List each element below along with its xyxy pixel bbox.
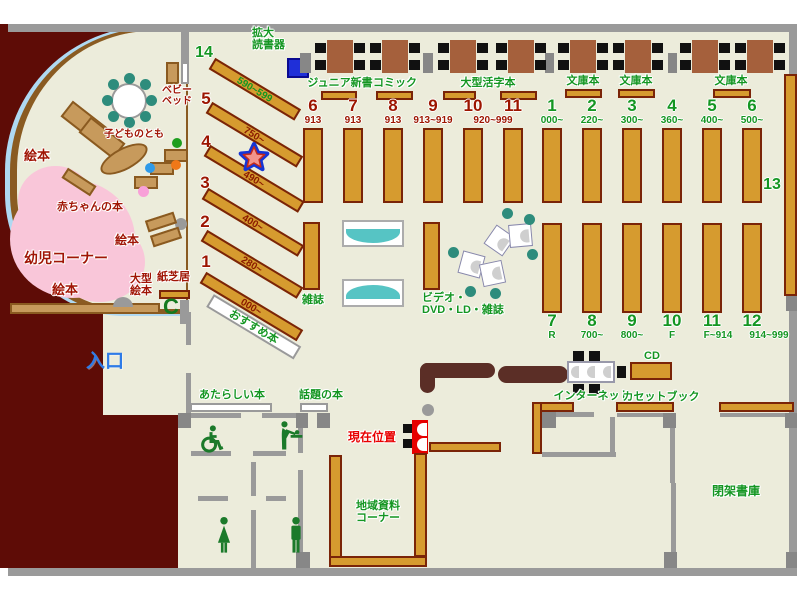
stack-shelf [423, 128, 443, 203]
internet-table [567, 361, 615, 383]
section-9-num: 9 [413, 97, 453, 115]
label-topic-books: 話題の本 [293, 389, 349, 401]
wall-stacks-left-a [670, 428, 675, 483]
wall-top [8, 24, 797, 32]
carrel-chair [524, 214, 535, 225]
fiction-5-range: 400~ [690, 115, 734, 126]
label-bunko-3: 文庫本 [710, 75, 752, 87]
diag-num-1: 1 [194, 253, 218, 271]
pillar [542, 412, 556, 428]
baby-change-icon [276, 420, 304, 452]
fiction-4-num: 4 [652, 97, 692, 115]
stack-shelf [582, 223, 602, 313]
section-11-num: 11 [493, 97, 533, 115]
color-dot-blue [145, 163, 155, 173]
south-10-num: 10 [652, 312, 692, 330]
south-8-num: 8 [572, 312, 612, 330]
label-kodomo-no-tomo: 子どものとも [104, 129, 164, 141]
label-large-print: 大型活字本 [453, 77, 523, 89]
wall-right-room [720, 413, 794, 417]
wall-corridor-right-a [186, 312, 191, 345]
magazine-rack [342, 220, 404, 247]
label-yoji-corner: 幼児コーナー [24, 252, 108, 264]
fiction-6-num: 6 [732, 97, 772, 115]
label-junior-shinsho: ジュニア新書 [305, 77, 375, 89]
stack-shelf [622, 128, 642, 203]
marker-side-shelf [429, 442, 501, 452]
library-floor-map: 絵本 子どものとも ベビー ベッド 赤ちゃんの本 絵本 幼児コーナー 絵本 大型… [0, 0, 800, 600]
magazine-shelf [303, 222, 320, 290]
south-11-range: F~914 [692, 330, 744, 341]
study-carrel [479, 260, 506, 287]
internet-chair [573, 351, 584, 361]
section-6-range: 913 [293, 115, 333, 126]
color-dot-pink [138, 186, 149, 197]
topic-books-shelf [300, 403, 328, 412]
stack-shelf [503, 128, 523, 203]
fiction-2-range: 220~ [570, 115, 614, 126]
label-zasshi: 雑誌 [294, 294, 332, 306]
wall-bottom [8, 568, 797, 576]
stack-shelf [383, 128, 403, 203]
phone-icon: C [163, 296, 179, 318]
fiction-1-range: 000~ [530, 115, 574, 126]
label-closed-stacks: 閉架書庫 [706, 485, 766, 497]
kids-chair-dot [108, 79, 119, 90]
current-location-marker [412, 420, 428, 454]
study-carrel [508, 223, 533, 248]
section-7-range: 913 [333, 115, 373, 126]
section-9-range: 913~919 [405, 115, 461, 126]
wall-mid-h [542, 452, 616, 457]
stack-shelf [702, 128, 722, 203]
baby-bed-box [166, 62, 179, 84]
pillar [786, 296, 797, 311]
reader-machine-label: 拡大 読書器 [252, 27, 302, 51]
wall-toilet-top-a [191, 413, 241, 418]
pillar [668, 53, 677, 73]
door-left-upper [181, 62, 189, 84]
pillar [663, 413, 676, 428]
kids-chair-dot [108, 111, 119, 122]
counter-bar [498, 366, 568, 383]
stack-shelf [622, 223, 642, 313]
fiction-5-num: 5 [692, 97, 732, 115]
fiction-1-num: 1 [532, 97, 572, 115]
label-comic: コミック [370, 77, 420, 89]
stack-shelf [662, 223, 682, 313]
wall-stacks-left-b [671, 483, 676, 557]
color-dot-orange [171, 160, 181, 170]
kids-chair-dot [140, 79, 151, 90]
internet-chair [589, 351, 600, 361]
section-10-num: 10 [453, 97, 493, 115]
pillar [545, 53, 554, 73]
pillar [300, 53, 311, 73]
pillar [664, 552, 677, 568]
man-icon [285, 516, 307, 554]
kids-chair-dot [146, 95, 157, 106]
local-u-bottom [329, 556, 427, 567]
color-dot-green [172, 138, 182, 148]
local-u-left [329, 455, 342, 567]
kids-bottom-wall [10, 303, 160, 314]
pillar [423, 53, 433, 73]
label-bunko-1: 文庫本 [562, 75, 604, 87]
carrel-chair [502, 208, 513, 219]
section-8-num: 8 [373, 97, 413, 115]
label-13: 13 [760, 176, 784, 194]
pillar [785, 413, 797, 428]
section-10-range: 920~999 [462, 115, 524, 126]
carrel-chair [465, 286, 476, 297]
label-baby-bed: ベビー ベッド [162, 85, 192, 107]
section-7-num: 7 [333, 97, 373, 115]
label-akachan: 赤ちゃんの本 [57, 201, 123, 213]
wall-toilet-div-b [251, 510, 256, 568]
cassette-shelf [616, 402, 674, 412]
stack-shelf [702, 223, 722, 313]
label-cd: CD [638, 350, 666, 362]
fiction-6-range: 500~ [730, 115, 774, 126]
star-marker [238, 142, 270, 174]
south-12-range: 914~999 [740, 330, 798, 341]
fiction-3-range: 300~ [610, 115, 654, 126]
new-books-shelf [190, 403, 272, 412]
stack-shelf [662, 128, 682, 203]
marker-chair [403, 439, 412, 448]
fiction-2-num: 2 [572, 97, 612, 115]
label-ehon-3: 絵本 [52, 284, 78, 296]
wall-mid-v [610, 417, 615, 457]
section-6-num: 6 [293, 97, 333, 115]
pillar [317, 413, 330, 428]
south-7-num: 7 [532, 312, 572, 330]
woman-icon [213, 516, 235, 554]
diag-num-3: 3 [193, 174, 217, 192]
label-ehon-2: 絵本 [115, 234, 139, 246]
pillar [296, 552, 310, 568]
label-current-location: 現在位置 [348, 431, 396, 443]
cd-shelf [630, 362, 672, 380]
diag-num-2: 2 [193, 213, 217, 231]
label-local-materials: 地域資料 コーナー [350, 500, 406, 524]
carrel-chair [448, 247, 459, 258]
magazine-rack [342, 279, 404, 307]
label-bunko-2: 文庫本 [615, 75, 657, 87]
video-shelf [423, 222, 440, 290]
shelf-13 [784, 74, 797, 296]
stack-shelf [742, 128, 762, 203]
wheelchair-icon [196, 424, 226, 454]
fiction-3-num: 3 [612, 97, 652, 115]
corner-shelf-v [532, 402, 542, 454]
wall-stall-a [198, 496, 228, 501]
kids-chair-dot [140, 111, 151, 122]
entrance-label: 入口 [86, 346, 124, 373]
stack-shelf [463, 128, 483, 203]
right-wall-shelf [719, 402, 794, 412]
stack-shelf [582, 128, 602, 203]
fiction-4-range: 360~ [650, 115, 694, 126]
wall-stall-b [266, 496, 286, 501]
marker-chair [403, 424, 412, 433]
south-9-num: 9 [612, 312, 652, 330]
pillar [178, 413, 191, 428]
stack-shelf [303, 128, 323, 203]
south-11-num: 11 [692, 312, 732, 330]
stack-shelf [742, 223, 762, 313]
wall-left-upper [181, 32, 189, 63]
south-10-range: F [648, 330, 696, 341]
pillar [786, 552, 797, 568]
wall-toilet-div-a [251, 462, 256, 496]
pillar-dot [422, 404, 434, 416]
kids-chair-dot [124, 73, 135, 84]
label-kamishibai: 紙芝居 [157, 271, 190, 283]
carrel-chair [490, 288, 501, 299]
label-new-books: あたらしい本 [196, 389, 268, 401]
exterior-left-bottom [0, 415, 178, 568]
local-u-right [414, 453, 427, 557]
carrel-chair [527, 249, 538, 260]
internet-chair [617, 366, 626, 378]
stack-shelf [343, 128, 363, 203]
label-ehon-1: 絵本 [24, 150, 50, 162]
kids-chair-dot [124, 117, 135, 128]
south-12-num: 12 [732, 312, 772, 330]
stack-shelf [542, 128, 562, 203]
counter-l-horizontal [420, 363, 495, 378]
label-ogata-ehon: 大型 絵本 [130, 273, 152, 297]
kids-chair-dot [102, 95, 113, 106]
stack-shelf [542, 223, 562, 313]
